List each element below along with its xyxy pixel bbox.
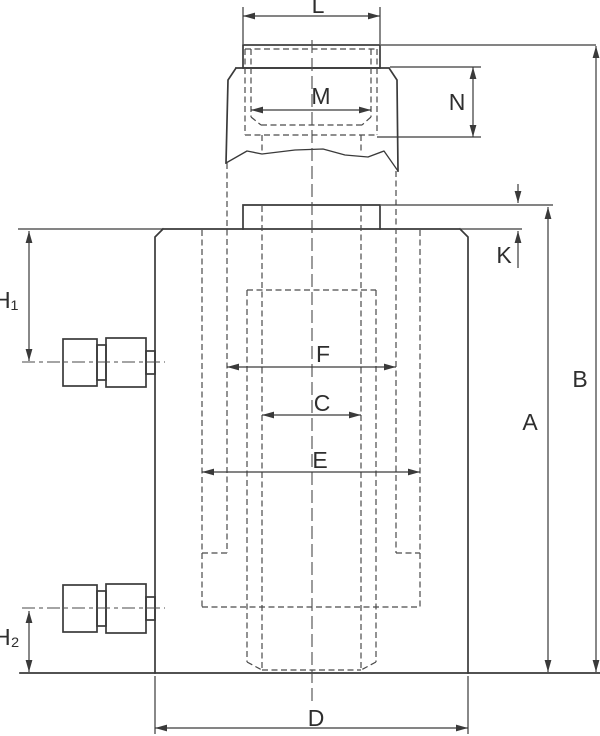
dim-label-E: E bbox=[312, 447, 327, 473]
dim-label-M: M bbox=[311, 83, 330, 109]
hydraulic-cylinder-dimension-diagram: L M N K H₁ H₂ F C E A B D bbox=[0, 0, 600, 736]
dim-label-K: K bbox=[496, 242, 512, 268]
dim-label-H2: H₂ bbox=[0, 624, 20, 650]
dim-label-C: C bbox=[314, 390, 331, 416]
ext-N bbox=[377, 67, 481, 137]
dim-label-D: D bbox=[308, 705, 325, 731]
dim-label-N: N bbox=[449, 89, 466, 115]
cylinder-bore-hidden bbox=[202, 230, 420, 607]
dim-label-H1: H₁ bbox=[0, 287, 19, 313]
technical-drawing-canvas: L M N K H₁ H₂ F C E A B D bbox=[0, 0, 600, 736]
extension-lines bbox=[18, 7, 596, 734]
center-lines bbox=[22, 40, 312, 701]
dim-label-A: A bbox=[522, 409, 538, 435]
hidden-lines bbox=[202, 49, 420, 670]
object-lines bbox=[20, 45, 600, 673]
dim-label-L: L bbox=[312, 0, 325, 18]
dim-label-B: B bbox=[572, 366, 587, 392]
dim-label-F: F bbox=[316, 341, 330, 367]
